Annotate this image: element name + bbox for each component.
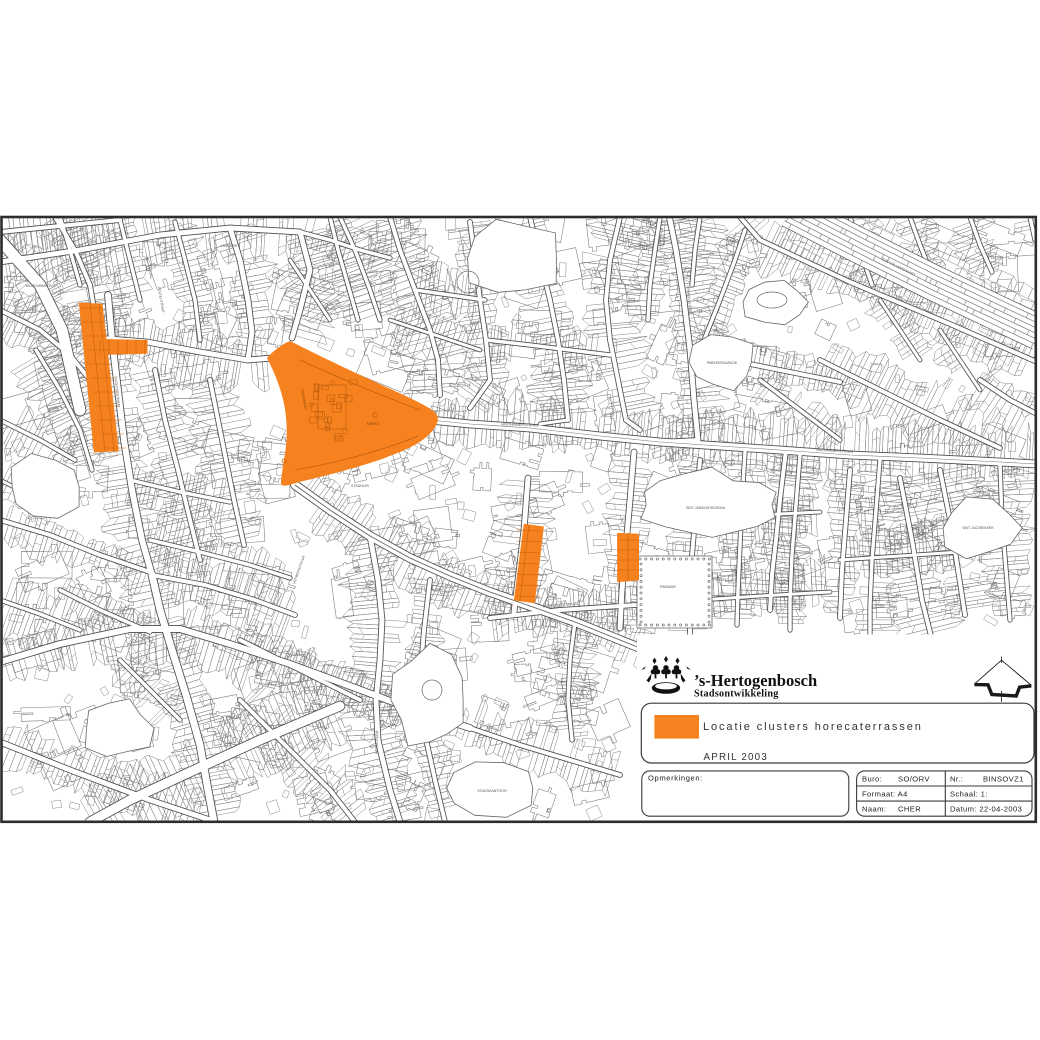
svg-text:PARADE: PARADE [660,584,676,589]
svg-text:Stadsontwikkeling: Stadsontwikkeling [694,689,779,700]
svg-text:Nr.:: Nr.: [950,774,963,783]
svg-text:SINT JACOBSKERK: SINT JACOBSKERK [962,526,994,530]
svg-text:PARKEERGARAGE: PARKEERGARAGE [707,361,738,365]
svg-text:KERKSTRAAT: KERKSTRAAT [375,729,380,754]
svg-text:Formaat: A4: Formaat: A4 [862,789,908,798]
svg-text:Schaal: 1:: Schaal: 1: [950,789,988,798]
svg-text:Buro:: Buro: [862,774,882,783]
svg-text:STADHUIS: STADHUIS [351,484,370,488]
svg-text:VISMARKT: VISMARKT [220,244,240,248]
svg-text:WILHELMINAPLEIN: WILHELMINAPLEIN [25,284,55,288]
svg-text:Opmerkingen:: Opmerkingen: [648,774,703,783]
svg-text:SO/ORV: SO/ORV [898,774,930,783]
svg-text:Locatie clusters horecaterrass: Locatie clusters horecaterrassen [703,721,923,733]
svg-text:Naam:: Naam: [862,805,886,814]
svg-text:SINT JANSKATHEDRAAL: SINT JANSKATHEDRAAL [686,506,726,510]
svg-text:’s-Hertogenbosch: ’s-Hertogenbosch [694,671,817,690]
svg-text:APRIL 2003: APRIL 2003 [704,752,768,763]
svg-text:MARKT: MARKT [367,422,380,426]
svg-text:BINSOVZ1: BINSOVZ1 [983,774,1024,783]
svg-text:CHER: CHER [898,805,921,814]
svg-text:STADSKANTOOR: STADSKANTOOR [477,789,507,793]
svg-text:Datum: 22-04-2003: Datum: 22-04-2003 [950,805,1022,814]
